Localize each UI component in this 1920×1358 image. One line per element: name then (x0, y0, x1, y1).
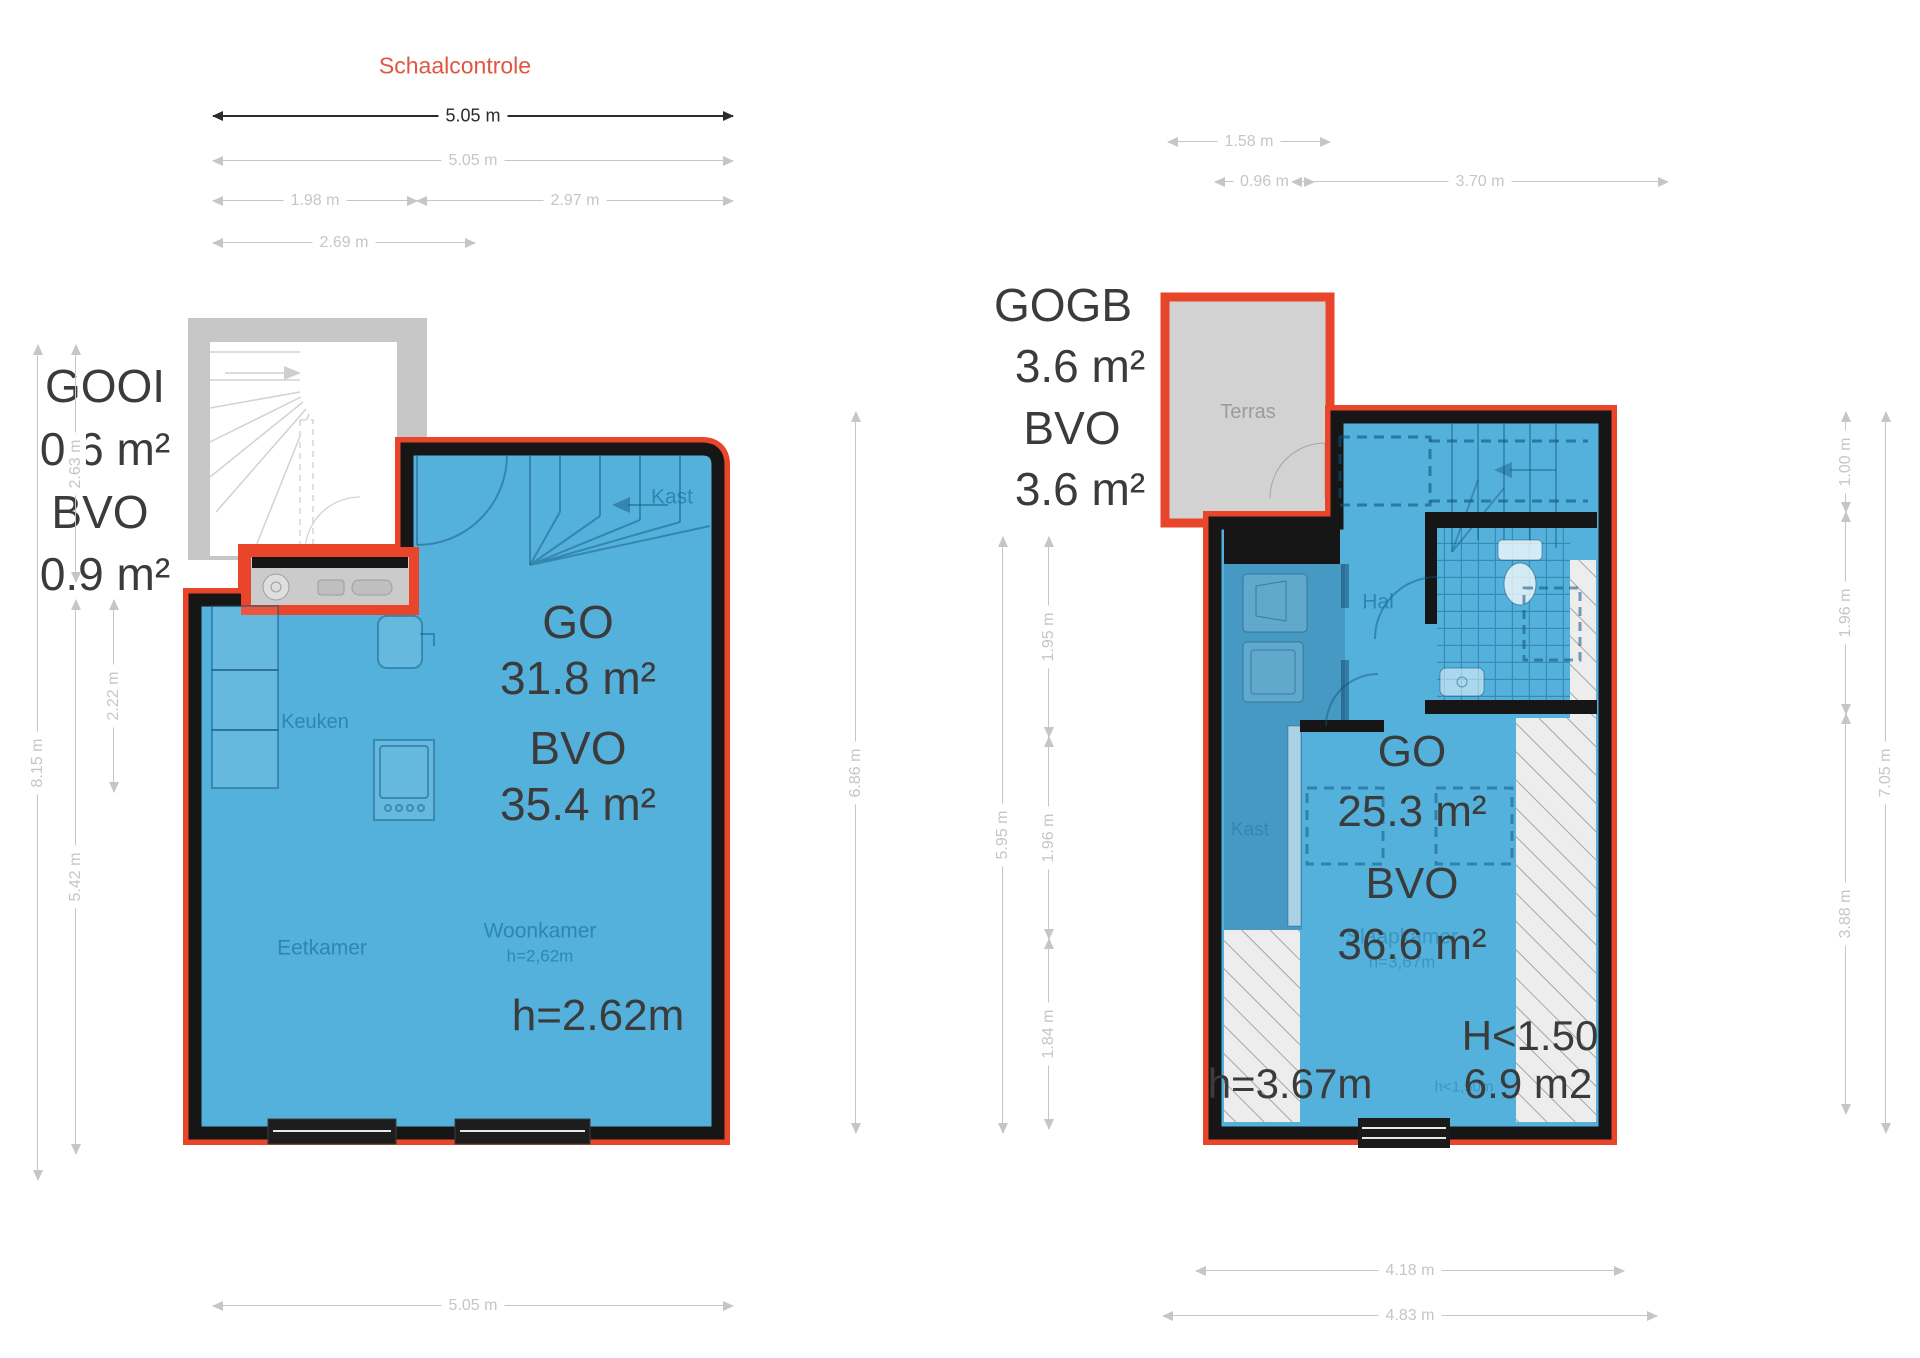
right-unit-bvo-area: 3.6 m² (1015, 466, 1145, 512)
left-room-keuken: Keuken (281, 712, 349, 732)
floorplan-page: Schaalcontrole GOOI0.6 m²BVO0.9 m²KastKe… (0, 0, 1920, 1358)
dim-topright-158: 1.58 m (1168, 141, 1330, 142)
left-unit-gooi-area: 0.6 m² (40, 426, 170, 472)
scale-check-title: Schaalcontrole (379, 55, 531, 78)
right-room-terras: Terras (1220, 402, 1276, 422)
dim-topright-370: 3.70 m (1292, 181, 1668, 182)
dim-right-196: 1.96 m (1845, 512, 1846, 714)
right-room-hal: Hal (1362, 592, 1394, 613)
dim-left-542: 5.42 m (75, 600, 76, 1154)
right-bvo-area: 36.6 m² (1337, 923, 1486, 967)
right-low-height-area: 6.9 m2 (1464, 1063, 1592, 1105)
utility-balcony (246, 552, 414, 610)
appliance-nook (1224, 564, 1349, 722)
dim-right-705: 7.05 m (1885, 412, 1886, 1133)
dim-left-815: 8.15 m (37, 345, 38, 1180)
left-room-woonkamer-height: h=2,62m (507, 948, 574, 965)
right-ceiling-height: h=3.67m (1208, 1063, 1373, 1105)
left-room-eetkamer: Eetkamer (277, 938, 367, 959)
dim-bottom-505: 5.05 m (213, 1305, 733, 1306)
dim-scalecheck-505: 5.05 m (213, 115, 733, 117)
left-room-woonkamer: Woonkamer (484, 921, 597, 942)
dim-bottom-483: 4.83 m (1163, 1315, 1657, 1316)
left-bvo-label: BVO (529, 725, 626, 771)
stairwell-common-area (188, 318, 427, 560)
left-go-label: GO (542, 599, 614, 645)
dim-top-505: 5.05 m (213, 160, 733, 161)
dim-mid-686: 6.86 m (855, 412, 856, 1133)
right-unit-window (1358, 1118, 1450, 1148)
left-unit-gooi: GOOI (45, 363, 165, 409)
right-unit-bvo-label: BVO (1023, 405, 1120, 451)
right-room-kast: Kast (1231, 821, 1269, 840)
right-low-height-label: H<1.50 (1462, 1015, 1599, 1057)
dim-left-222: 2.22 m (113, 600, 114, 792)
kitchen-counter (212, 606, 278, 788)
dim-rplan-195: 1.95 m (1048, 537, 1049, 737)
dim-rplan-196: 1.96 m (1048, 737, 1049, 939)
left-unit-bvo-label: BVO (51, 489, 148, 535)
left-go-area: 31.8 m² (500, 655, 656, 701)
dim-top-269: 2.69 m (213, 242, 475, 243)
right-unit-gogb-area: 3.6 m² (1015, 343, 1145, 389)
right-unit-gogb: GOGB (994, 282, 1132, 328)
kitchen-sink (378, 616, 422, 668)
dim-rplan-595: 5.95 m (1002, 537, 1003, 1133)
left-room-kast: Kast (651, 487, 693, 508)
left-unit-bvo-area: 0.9 m² (40, 551, 170, 597)
right-bvo-label: BVO (1366, 862, 1459, 906)
dim-bottom-418: 4.18 m (1196, 1270, 1624, 1271)
stair-railing (300, 420, 313, 553)
dim-top-297: 2.97 m (417, 200, 733, 201)
right-go-label: GO (1378, 730, 1446, 774)
washbasin (1440, 668, 1484, 696)
dim-top-198: 1.98 m (213, 200, 417, 201)
left-ceiling-height: h=2.62m (512, 994, 684, 1038)
dim-left-263: 2.63 m (75, 345, 76, 582)
dim-rplan-184: 1.84 m (1048, 939, 1049, 1129)
left-bvo-area: 35.4 m² (500, 781, 656, 827)
dim-right-388: 3.88 m (1845, 714, 1846, 1114)
right-go-area: 25.3 m² (1337, 790, 1486, 834)
dim-right-100: 1.00 m (1845, 412, 1846, 512)
